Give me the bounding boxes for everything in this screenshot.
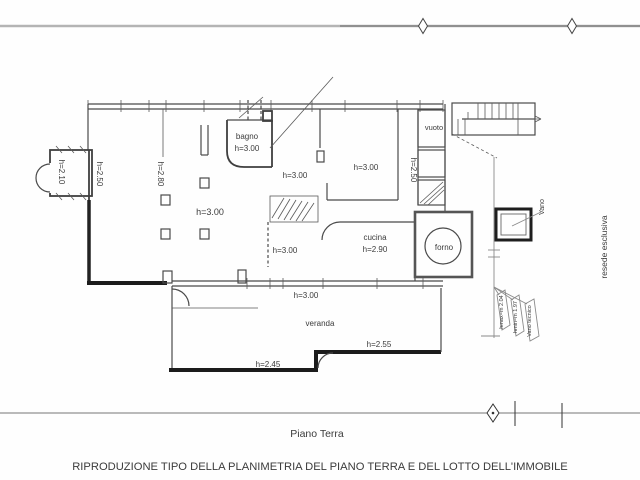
door-arc-icon xyxy=(318,353,333,368)
floor-plan-drawing: bagno h=3.00 h=2.10 h=2.50 h=2.80 h=3.00… xyxy=(0,0,640,480)
label-hmax: hmax=m 2.04 xyxy=(499,295,505,328)
door-arc-icon xyxy=(172,289,189,306)
label-forno: forno xyxy=(435,243,454,252)
label-resede-esclusiva: resede esclusiva xyxy=(599,215,609,279)
label-cucina: cucina xyxy=(363,233,387,242)
label-shaft-height: h=2.50 xyxy=(409,158,418,183)
floorplan-sheet: bagno h=3.00 h=2.10 h=2.50 h=2.80 h=3.00… xyxy=(0,0,640,480)
label-bagno: bagno xyxy=(236,132,259,141)
label-veranda-left-height: h=2.45 xyxy=(256,360,281,369)
lot-boundary-top xyxy=(0,19,640,34)
survey-diamond-icon xyxy=(419,19,428,34)
label-vuoto: vuoto xyxy=(425,123,443,132)
label-soggiorno-height: h=3.00 xyxy=(196,207,224,217)
label-bagno-height: h=3.00 xyxy=(235,144,260,153)
interior-stair xyxy=(270,196,318,222)
label-aisle-mid-height: h=2.80 xyxy=(156,162,165,187)
label-aisle-left-height: h=2.50 xyxy=(95,162,104,187)
stair-direction-arrow-icon xyxy=(468,112,541,122)
survey-diamond-icon xyxy=(568,19,577,34)
sheet-caption: RIPRODUZIONE TIPO DELLA PLANIMETRIA DEL … xyxy=(72,461,568,473)
label-veranda: veranda xyxy=(306,319,335,328)
label-cucina-height: h=2.90 xyxy=(363,245,388,254)
label-veranda-right-height: h=2.55 xyxy=(367,340,392,349)
floor-title: Piano Terra xyxy=(290,428,344,440)
label-hall-upper-height: h=3.00 xyxy=(283,171,308,180)
plan-labels: bagno h=3.00 h=2.10 h=2.50 h=2.80 h=3.00… xyxy=(57,123,609,369)
building-walls xyxy=(87,100,445,289)
lot-boundary-bottom xyxy=(0,401,640,428)
label-vano: Vano xyxy=(539,199,546,215)
door-arc-icon xyxy=(322,222,340,240)
label-hmin: hmin=m 1.97 xyxy=(513,301,519,333)
label-hall-lower-height: h=3.00 xyxy=(273,246,298,255)
label-vano-tecnico: Vano tecnico xyxy=(527,305,533,336)
double-door-arc-icon xyxy=(36,178,50,192)
label-veranda-top-height: h=3.00 xyxy=(294,291,319,300)
label-dining-height: h=3.00 xyxy=(354,163,379,172)
label-porch-height: h=2.10 xyxy=(57,160,66,185)
external-stair xyxy=(452,103,541,158)
double-door-arc-icon xyxy=(36,164,50,178)
